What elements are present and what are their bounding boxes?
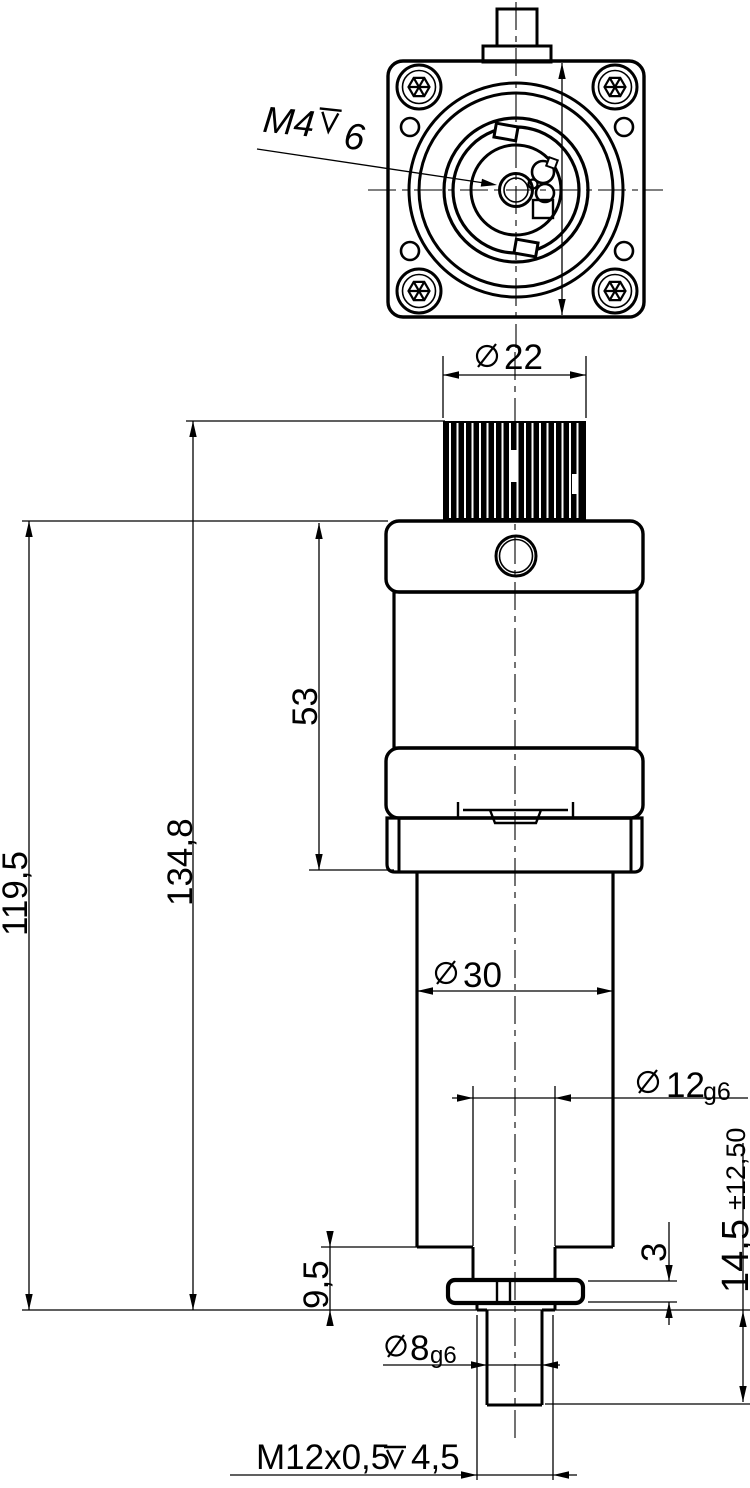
mounting-hole [615, 242, 633, 260]
arrowhead-right [471, 1361, 487, 1368]
arrowhead-down [558, 299, 565, 315]
depth-symbol-icon [317, 108, 341, 132]
overall-length-label: 134,8 [161, 818, 200, 906]
stroke-length-label: 14,5 [715, 1219, 750, 1293]
arrowhead-up [326, 1310, 333, 1326]
arrowhead-down [326, 1231, 333, 1247]
arrowhead-right [570, 371, 586, 378]
arrowhead-up [739, 1311, 746, 1327]
dimension-overall-length: 134,8 [161, 421, 445, 1310]
drawing-page: M4 6 [0, 0, 750, 1483]
dimension-stroke-length: 14,5 ±12,50 [22, 1128, 750, 1404]
housing-diameter-label: 30 [463, 956, 502, 995]
diameter-symbol-icon [387, 1335, 406, 1357]
motor-length-label: 53 [286, 687, 325, 726]
detail-notch [546, 157, 558, 169]
nut-thickness-label: 3 [635, 1243, 674, 1262]
arrowhead-down [189, 1294, 196, 1310]
arrowhead-up [189, 421, 196, 437]
arrowhead-left [555, 1094, 571, 1101]
dimension-spindle-diameter: 8 g6 [383, 1329, 560, 1369]
dimension-length-to-flange: 119,5 [0, 521, 388, 1310]
connector-diameter-label: 22 [504, 338, 543, 377]
arrowhead-right [597, 987, 613, 994]
mounting-hole [615, 118, 633, 136]
leader-arrowhead [481, 179, 497, 187]
diameter-symbol-icon [477, 344, 497, 367]
arrowhead-down [25, 1294, 32, 1310]
spindle-diameter-label: 8 [410, 1329, 429, 1368]
arrowhead-left [443, 371, 459, 378]
flange-hole-inner [500, 540, 533, 573]
dimension-shoulder-length: 9,5 [297, 1231, 418, 1326]
arrowhead-up [315, 523, 322, 539]
diameter-symbol-icon [638, 1070, 658, 1093]
shaft-fit-label: g6 [703, 1078, 731, 1106]
torx-screw-top-right [593, 65, 637, 109]
top-view: M4 6 [257, 2, 663, 348]
shoulder-length-label: 9,5 [297, 1260, 336, 1309]
shaft-shoulder [473, 1247, 555, 1280]
technical-drawing: M4 6 [0, 0, 750, 1483]
shaft-diameter-label: 12 [666, 1066, 705, 1105]
knurled-connector [443, 421, 586, 520]
arrowhead-right [461, 1471, 477, 1478]
stroke-tolerance-label: ±12,50 [721, 1128, 750, 1210]
dimension-motor-length: 53 [286, 523, 394, 870]
torx-screw-bottom-left [397, 269, 441, 313]
arrowhead-up [558, 63, 565, 79]
arrowhead-left [542, 1361, 558, 1368]
arrowhead-down [315, 854, 322, 870]
spindle-fit-label: g6 [430, 1342, 457, 1369]
thread-size-label: M4 [261, 99, 316, 145]
arrowhead-down [739, 1386, 746, 1402]
spindle-thread-label: M12x0,5 [256, 1438, 390, 1477]
mounting-hole [401, 118, 419, 136]
arrowhead-down [665, 1265, 672, 1281]
torx-screw-bottom-right [593, 269, 637, 313]
diameter-symbol-icon [436, 961, 456, 984]
length-to-flange-label: 119,5 [0, 851, 35, 936]
connector-stub [497, 9, 537, 46]
arrowhead-right [457, 1094, 473, 1101]
dimensions: 22 134,8 119,5 53 [0, 338, 750, 1480]
mounting-hole [401, 242, 419, 260]
arrowhead-left [417, 987, 433, 994]
arrowhead-left [553, 1471, 569, 1478]
key-notch-bottom [514, 239, 538, 257]
front-view [386, 352, 643, 1438]
spindle-thread-depth-label: 4,5 [411, 1438, 460, 1477]
thread-depth-label: 6 [342, 115, 367, 158]
key-notch-top [494, 123, 518, 141]
arrowhead-up [25, 521, 32, 537]
flange-hole [496, 536, 536, 576]
dimension-shaft-diameter: 12 g6 [452, 1066, 748, 1246]
torx-screw-top-left [397, 65, 441, 109]
